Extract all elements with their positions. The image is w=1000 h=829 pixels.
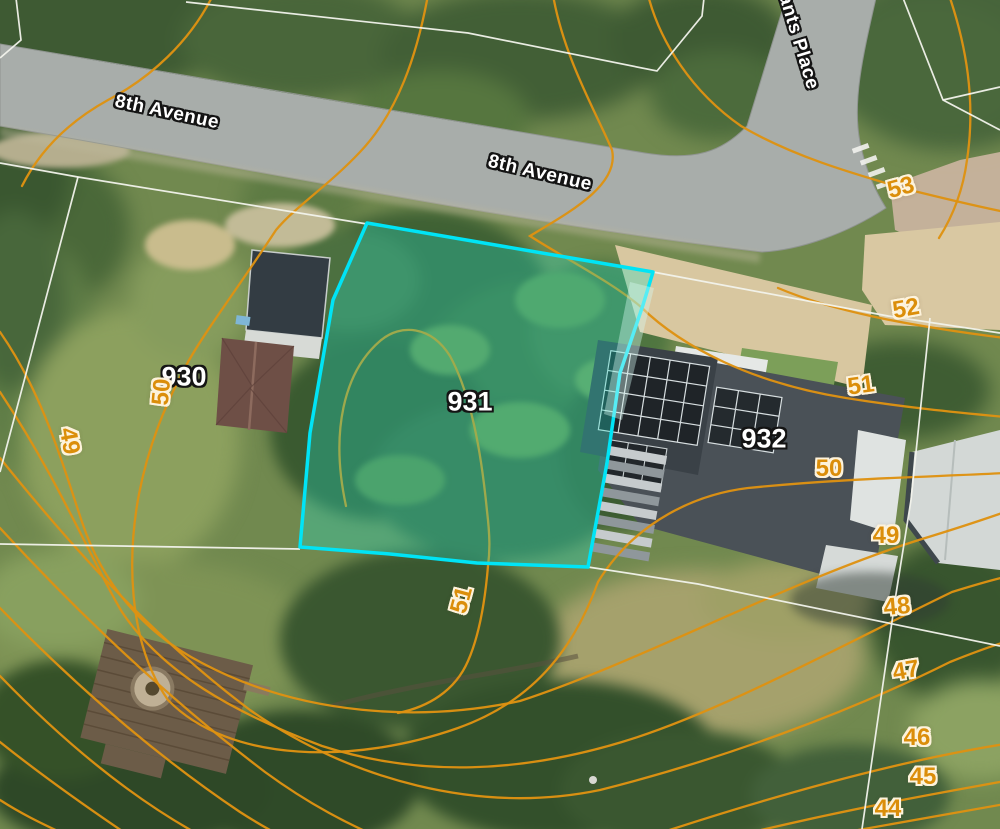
contour-label-45: 45: [910, 765, 937, 789]
contour-label-46: 46: [904, 726, 931, 750]
contour-label-50-right: 50: [816, 457, 843, 481]
contour-label-51-right: 51: [846, 372, 876, 399]
contour-label-44: 44: [875, 797, 902, 821]
lot-label-932: 932: [741, 426, 786, 453]
contour-label-48: 48: [883, 594, 912, 620]
contour-label-47: 47: [891, 657, 921, 685]
sand-parking: [862, 222, 1000, 330]
aerial-imagery: [0, 0, 1000, 829]
contour-label-49-left: 49: [55, 426, 83, 456]
contour-label-52: 52: [891, 295, 921, 323]
contour-label-49-right: 49: [873, 524, 900, 548]
map-canvas[interactable]: 8th Avenue 8th Avenue rants Place 930 93…: [0, 0, 1000, 829]
contour-label-50-left: 50: [149, 378, 175, 407]
lot-label-931: 931: [447, 389, 492, 416]
